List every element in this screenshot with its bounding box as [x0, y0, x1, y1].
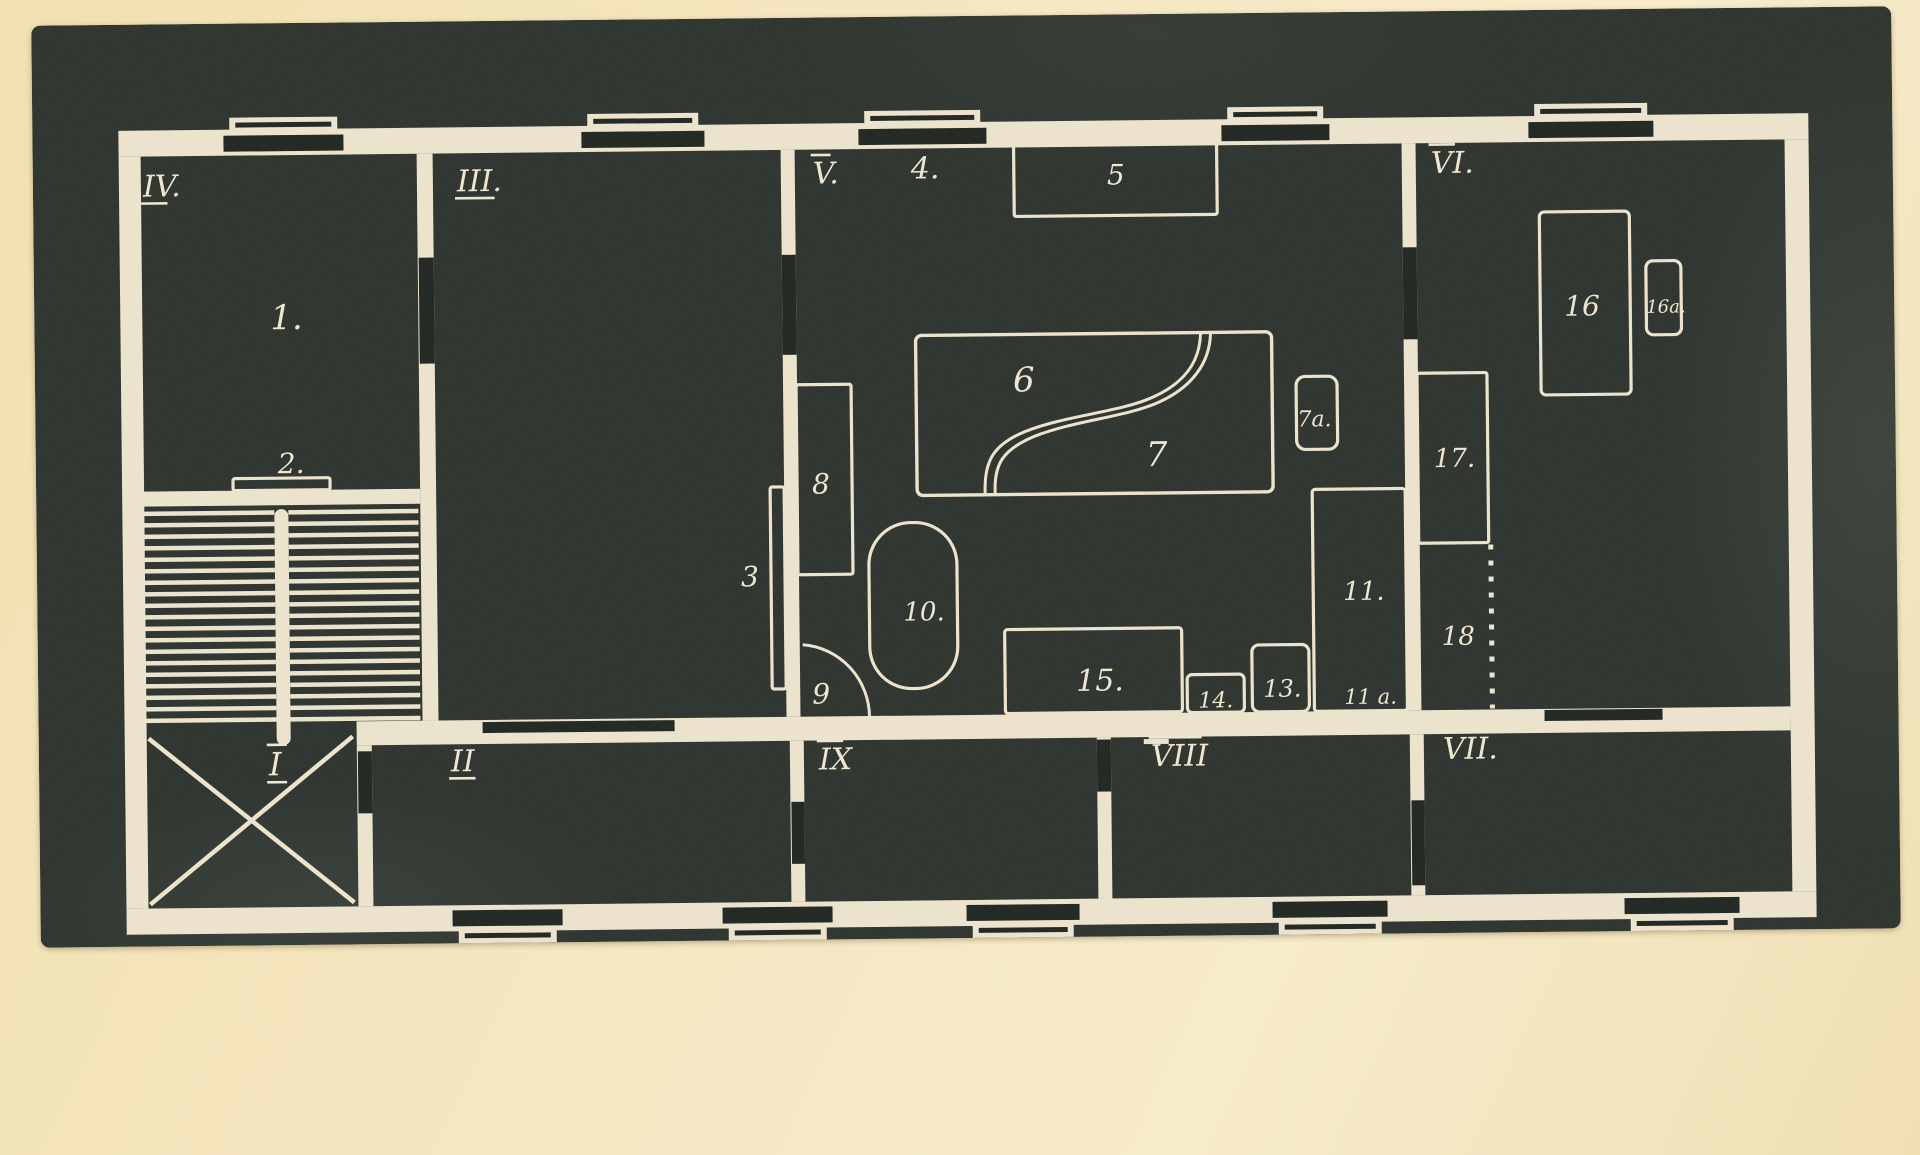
scanned-album-page: IV.III.V.VI.IIIIXVIIIVII.1.2.34.5677a.89… — [0, 0, 1920, 1155]
floorplan-drawing: IV.III.V.VI.IIIIXVIIIVII.1.2.34.5677a.89… — [31, 6, 1901, 947]
film-grain-overlay — [31, 6, 1901, 947]
floorplan-photograph: IV.III.V.VI.IIIIXVIIIVII.1.2.34.5677a.89… — [31, 6, 1901, 947]
